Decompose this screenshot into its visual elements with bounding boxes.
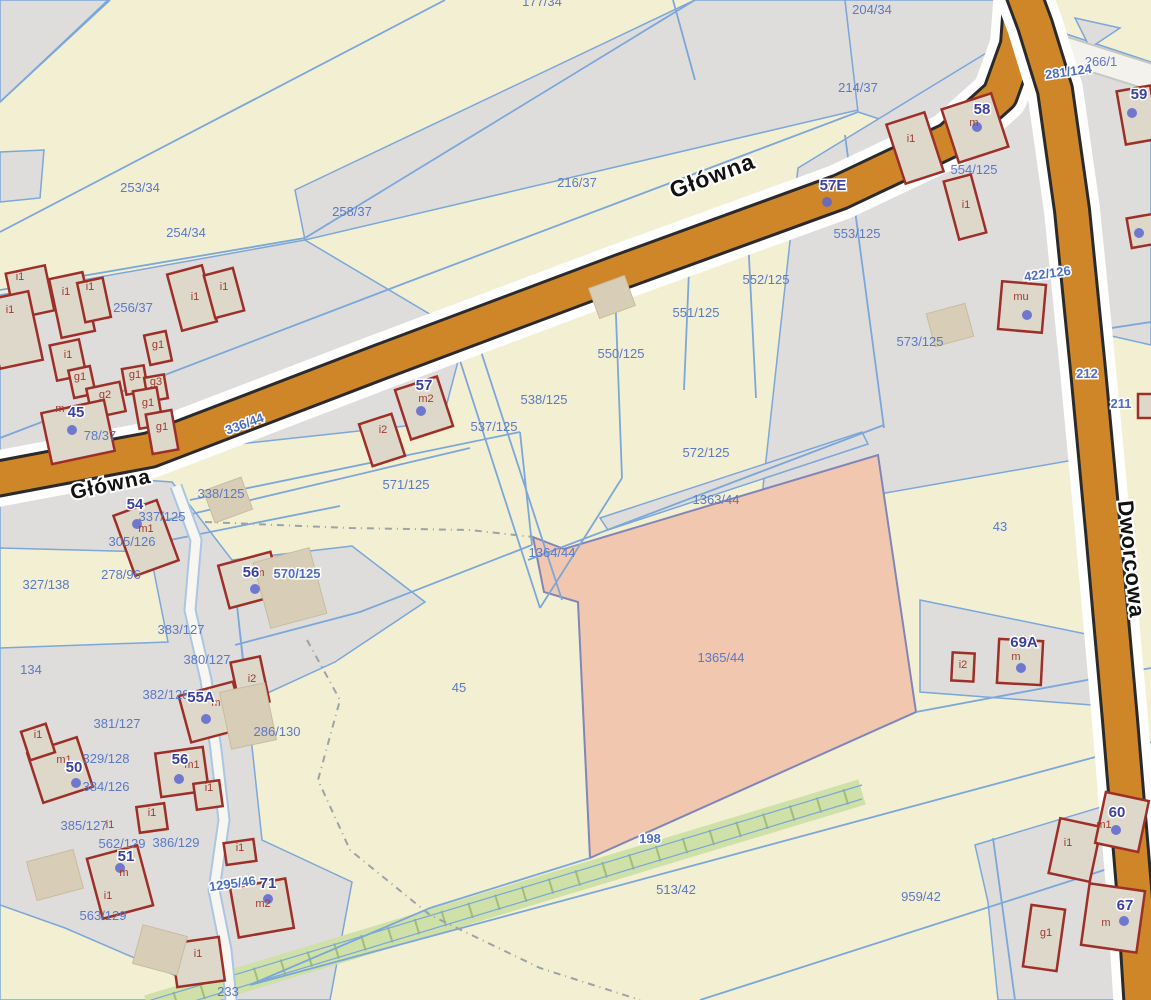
address-point-dot bbox=[1016, 663, 1026, 673]
parcel-number-278-96: 278/96 bbox=[101, 567, 141, 582]
parcel-number-216-37: 216/37 bbox=[557, 175, 597, 190]
parcel-number-552-125: 552/125 bbox=[743, 272, 790, 287]
address-point-dot bbox=[174, 774, 184, 784]
parcel-number-253-34: 253/34 bbox=[120, 180, 160, 195]
building-label-g1: g1 bbox=[156, 421, 168, 433]
building-label-g1: g1 bbox=[142, 397, 154, 409]
road-parcel-number-211: 211 bbox=[1111, 396, 1132, 411]
parcel-number-327-138: 327/138 bbox=[23, 577, 70, 592]
address-point-dot bbox=[201, 714, 211, 724]
building-label-i1: i1 bbox=[34, 729, 43, 741]
building-label-i1: i1 bbox=[220, 281, 229, 293]
parcel-number-256-37: 256/37 bbox=[113, 300, 153, 315]
parcel-number-959-42: 959/42 bbox=[901, 889, 941, 904]
building-label-g2: g2 bbox=[99, 389, 111, 401]
building-label-m: m bbox=[1101, 917, 1110, 929]
building-label-i1: i1 bbox=[191, 291, 200, 303]
parcel-number-382-128: 382/128 bbox=[143, 687, 190, 702]
house-number-71: 71 bbox=[260, 875, 277, 892]
parcel-number-233: 233 bbox=[217, 984, 239, 999]
building bbox=[1081, 883, 1145, 952]
house-number-60: 60 bbox=[1109, 804, 1126, 821]
parcel-number-537-125: 537/125 bbox=[471, 419, 518, 434]
parcel-number-134: 134 bbox=[20, 662, 42, 677]
building-label-m1: m1 bbox=[138, 523, 153, 535]
building-label-i1: i1 bbox=[16, 271, 25, 283]
building-label-m: m bbox=[969, 117, 978, 129]
parcel-number-204-34: 204/34 bbox=[852, 2, 892, 17]
address-point-dot bbox=[71, 778, 81, 788]
parcel-number-513-42: 513/42 bbox=[656, 882, 696, 897]
parcel-number-254-34: 254/34 bbox=[166, 225, 206, 240]
address-point-dot bbox=[250, 584, 260, 594]
parcel-number-381-127: 381/127 bbox=[94, 716, 141, 731]
parcel-number-573-125: 573/125 bbox=[897, 334, 944, 349]
parcel-number-329-128: 329/128 bbox=[83, 751, 130, 766]
parcel-number-43: 43 bbox=[993, 519, 1007, 534]
building-label-i2: i2 bbox=[248, 673, 257, 685]
parcel-number-386-129: 386/129 bbox=[153, 835, 200, 850]
building-label-g1: g1 bbox=[1040, 927, 1052, 939]
address-point-dot bbox=[416, 406, 426, 416]
building-label-i1: i1 bbox=[205, 782, 214, 794]
building-label-i1: i1 bbox=[907, 133, 916, 145]
house-number-55A: 55A bbox=[187, 689, 215, 706]
building-label-g1: g1 bbox=[74, 371, 86, 383]
house-number-56: 56 bbox=[172, 751, 189, 768]
building-label-g1: g1 bbox=[129, 369, 141, 381]
address-point-dot bbox=[1119, 916, 1129, 926]
building-label-i1: i1 bbox=[962, 199, 971, 211]
house-number-58: 58 bbox=[974, 101, 991, 118]
address-point-dot bbox=[67, 425, 77, 435]
building-label-i1: i1 bbox=[1064, 837, 1073, 849]
parcel-number-383-127: 383/127 bbox=[158, 622, 205, 637]
parcel-number-214-37: 214/37 bbox=[838, 80, 878, 95]
house-number-57E: 57E bbox=[820, 177, 847, 194]
building-label-m: m bbox=[1011, 651, 1020, 663]
parcel-number-538-125: 538/125 bbox=[521, 392, 568, 407]
building-label-i1: i1 bbox=[64, 349, 73, 361]
building-label-i1: i1 bbox=[236, 842, 245, 854]
building-label-g3: g3 bbox=[150, 376, 162, 388]
parcel-number-380-127: 380/127 bbox=[184, 652, 231, 667]
house-number-67: 67 bbox=[1117, 897, 1134, 914]
parcel-number-571-125: 571/125 bbox=[383, 477, 430, 492]
parcel-number-1365-44: 1365/44 bbox=[698, 650, 745, 665]
parcel-number-1364-44: 1364/44 bbox=[529, 545, 576, 560]
house-number-54: 54 bbox=[127, 496, 144, 513]
house-number-50: 50 bbox=[66, 759, 83, 776]
address-point-dot bbox=[1134, 228, 1144, 238]
building-label-i1: i1 bbox=[106, 819, 115, 831]
house-number-69A: 69A bbox=[1010, 634, 1038, 651]
house-number-59: 59 bbox=[1131, 86, 1148, 103]
parcel-number-553-125: 553/125 bbox=[834, 226, 881, 241]
parcel-number-286-130: 286/130 bbox=[254, 724, 301, 739]
parcel-number-563-129: 563/129 bbox=[80, 908, 127, 923]
building-label-i2: i2 bbox=[379, 424, 388, 436]
building-label-i1: i1 bbox=[194, 948, 203, 960]
parcel-number-550-125: 550/125 bbox=[598, 346, 645, 361]
building-label-i1: i1 bbox=[62, 286, 71, 298]
house-number-56: 56 bbox=[243, 564, 260, 581]
parcel-number-551-125: 551/125 bbox=[673, 305, 720, 320]
parcel-number-78-37: 78/37 bbox=[84, 428, 117, 443]
address-point-dot bbox=[1111, 825, 1121, 835]
building-label-mu: mu bbox=[1013, 291, 1028, 303]
building-label-m: m bbox=[55, 403, 64, 415]
parcel-number-572-125: 572/125 bbox=[683, 445, 730, 460]
parcel-number-385-127: 385/127 bbox=[61, 818, 108, 833]
address-point-dot bbox=[1127, 108, 1137, 118]
building bbox=[998, 281, 1046, 333]
house-number-45: 45 bbox=[68, 404, 85, 421]
building bbox=[1138, 394, 1151, 418]
map-canvas[interactable]: 204/34177/34214/37253/34216/37258/37254/… bbox=[0, 0, 1151, 1000]
parcel-number-1363-44: 1363/44 bbox=[693, 492, 740, 507]
parcel-number-554-125: 554/125 bbox=[951, 162, 998, 177]
parcel-number-338-125: 338/125 bbox=[198, 486, 245, 501]
parcel-number-337-125: 337/125 bbox=[139, 509, 186, 524]
road-parcel-number-570-125: 570/125 bbox=[274, 566, 321, 581]
address-point-dot bbox=[822, 197, 832, 207]
parcel-gray bbox=[0, 150, 44, 202]
parcel-number-384-126: 384/126 bbox=[83, 779, 130, 794]
building-label-g1: g1 bbox=[152, 339, 164, 351]
building-label-m2: m2 bbox=[255, 898, 270, 910]
building-label-i1: i1 bbox=[148, 807, 157, 819]
building-label-i1: i1 bbox=[104, 890, 113, 902]
house-number-57: 57 bbox=[416, 377, 433, 394]
building-label-m2: m2 bbox=[418, 393, 433, 405]
parcel-number-305-126: 305/126 bbox=[109, 534, 156, 549]
house-number-51: 51 bbox=[118, 848, 135, 865]
parcel-number-45: 45 bbox=[452, 680, 466, 695]
parcel-number-258-37: 258/37 bbox=[332, 204, 372, 219]
building-label-i1: i1 bbox=[86, 281, 95, 293]
parcel-number-177-34: 177/34 bbox=[522, 0, 562, 9]
building-label-m: m bbox=[119, 867, 128, 879]
building-label-i1: i1 bbox=[6, 304, 15, 316]
road-parcel-number-198: 198 bbox=[639, 831, 661, 846]
address-point-dot bbox=[1022, 310, 1032, 320]
road-parcel-number-212: 212 bbox=[1076, 366, 1098, 381]
building-label-i2: i2 bbox=[959, 659, 968, 671]
